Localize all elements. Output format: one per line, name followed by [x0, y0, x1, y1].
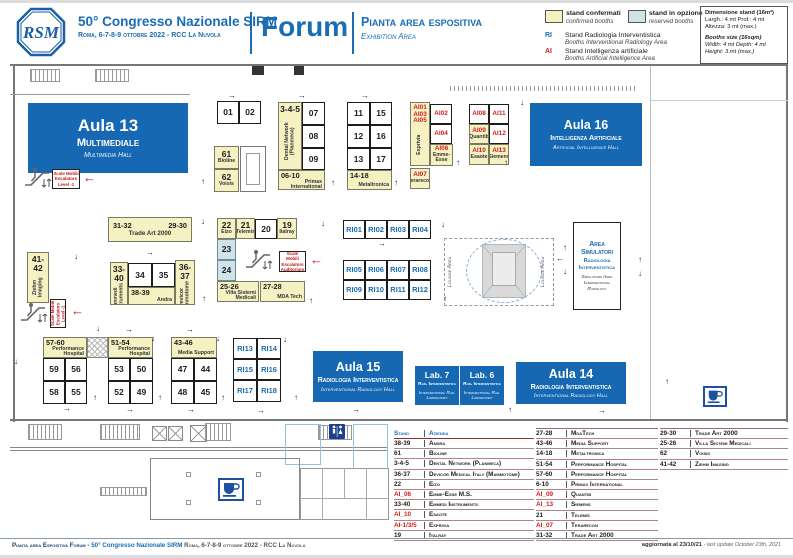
directory-company-name: Performance Hospital: [566, 471, 627, 478]
confirmed-booth-label: stand confermati: [566, 10, 621, 18]
booth-code: RI17: [237, 387, 253, 395]
escalator-center-sign: Scale Mobili Escalators Auditorium: [279, 251, 306, 272]
direction-arrow: ↑: [394, 179, 398, 187]
escalator-west-arrow: ←: [83, 171, 96, 184]
booth-61: 61Bioline: [214, 146, 239, 169]
booth-code: RI06: [368, 266, 384, 274]
directory-row: 62Voisis: [660, 449, 788, 459]
direction-arrow: ↑: [158, 394, 162, 402]
directory-stand-code: 27-28: [536, 430, 566, 437]
confirmed-booth-sublabel: confirmed booths: [566, 18, 613, 25]
booth-RI05: RI05: [343, 260, 365, 280]
hall-lab-6-t3: Interventional Rad. Laboratory: [460, 390, 504, 401]
direction-arrow: ↓: [96, 325, 100, 333]
hall-lab-7-t1: Lab. 7: [425, 371, 450, 381]
booth-code: 44: [201, 365, 210, 374]
booth-code: RI05: [346, 266, 362, 274]
booth-code: AI08: [472, 111, 486, 118]
booth-code: RI01: [346, 226, 362, 234]
directory-stand-code: 36-37: [394, 471, 424, 478]
simulators-area-box: Area Simulatori Radiologia Interventisti…: [573, 222, 621, 310]
booth-55: 55: [65, 381, 87, 404]
directory-row: 3-4-5Dental Network (Planmeca): [394, 459, 534, 469]
direction-arrow: ↓: [563, 268, 567, 276]
booth-31-32-29-30: 31-3229-30Trade Art 2000: [108, 217, 192, 242]
direction-arrow: ↓: [638, 270, 642, 278]
directory-row: 19Italray: [394, 531, 534, 541]
booth-51-54: 51-54Performance Hospital: [108, 337, 153, 358]
simulators-title-it: Area Simulatori: [581, 240, 613, 257]
directory-company-name: Esaote: [424, 511, 447, 518]
booth-44: 44: [194, 358, 217, 381]
directory-stand-code: AI_06: [394, 491, 424, 498]
escalator-center-arrow: ←: [310, 253, 323, 266]
directory-row: AI_06Emme-Esse M.S.: [394, 490, 534, 500]
direction-arrow: ↑: [93, 394, 97, 402]
booth-35: 35: [152, 263, 175, 287]
directory-row: 6-10Primax International: [536, 480, 658, 490]
booth-code: RI16: [261, 366, 277, 374]
booth-company: Italray: [279, 230, 294, 235]
direction-arrow: ↑: [638, 256, 642, 264]
ai-legend-sublabel: Booths Artificial Intelligence Area: [565, 55, 655, 62]
direction-arrow: ↓: [283, 336, 287, 344]
hall-lab-6-t2: Rad. Interventistica: [463, 382, 501, 388]
direction-arrow: →: [186, 326, 194, 334]
directory-company-name: Voisis: [690, 450, 710, 457]
directory-stand-code: 6-10: [536, 481, 566, 488]
booth-41-42: 41-42Ziehm Imaging: [27, 252, 49, 303]
booth-code: 31-32: [113, 222, 132, 230]
direction-arrow: →: [378, 240, 386, 248]
booth-company: Emme-Esse: [431, 153, 452, 164]
booth-62: 62Voisis: [214, 169, 239, 192]
booth-23: 23: [217, 239, 236, 260]
booth-code: RI02: [368, 226, 384, 234]
directory-row: 14-18Metaltronica: [536, 449, 658, 459]
booth-RI03: RI03: [387, 220, 409, 239]
directory-stand-code: 14-18: [536, 450, 566, 457]
directory-stand-code: 21: [536, 512, 566, 519]
direction-arrow: →: [257, 407, 265, 415]
booth-code: 12: [354, 132, 363, 141]
directory-company-name: Primax International: [566, 481, 623, 488]
booth-AI12: AI12: [489, 124, 509, 144]
direction-arrow: ↓: [441, 221, 445, 229]
directory-stand-code: 25-26: [660, 440, 690, 447]
booth-code: RI12: [412, 286, 428, 294]
booth-13: 13: [347, 148, 370, 170]
booth-RI07: RI07: [387, 260, 409, 280]
booth-code: 27-28: [263, 283, 302, 291]
booth-RI12: RI12: [409, 280, 431, 300]
header-divider: [250, 12, 252, 54]
booth-27-28: 27-28MDA Tech: [260, 281, 305, 302]
booth-code: 52: [114, 388, 123, 397]
directory-company-name: Dental Network (Planmeca): [424, 460, 501, 467]
booth-code: 49: [137, 388, 146, 397]
direction-arrow: ↑: [201, 178, 205, 186]
booth-code: 07: [309, 109, 318, 118]
booth-company: Trade Art 2000: [129, 231, 171, 238]
venue-name: Forum: [261, 11, 348, 43]
direction-arrow: ↓: [201, 218, 205, 226]
booth-RI01: RI01: [343, 220, 365, 239]
stand-dimensions-box: Dimensione stand (16m²) Largh.: 4 mt Pro…: [700, 6, 788, 64]
hall-aula-16-t2: Intelligenza Artificiale: [550, 134, 621, 142]
hall-aula-15-t3: Interventional Radiology Hall: [321, 387, 395, 393]
direction-arrow: ↑: [563, 244, 567, 252]
directory-row: AI-1/3/5Exprivia: [394, 521, 534, 531]
booth-57-60: 57-60Performance Hospital: [43, 337, 87, 358]
directory-company-name: MdaTech: [566, 430, 594, 437]
booth-RI09: RI09: [343, 280, 365, 300]
service-area-hatch: [87, 337, 108, 358]
booth-code: 15: [376, 109, 385, 118]
hall-aula-15-t2: Radiologia Interventistica: [318, 376, 399, 384]
direction-arrow: →: [187, 406, 195, 414]
hall-aula-14-t3: Interventional Radiology Hall: [534, 393, 608, 399]
booth-code: AI01 AI03 AI05: [413, 105, 427, 125]
booth-code: 55: [71, 388, 80, 397]
directory-row: 25-26Villa Sistemi Medicali: [660, 439, 788, 449]
directory-company-name: Andra: [424, 440, 445, 447]
booth-code: RI09: [346, 286, 362, 294]
booth-code: RI15: [237, 366, 253, 374]
directory-company-name: Quantib: [566, 491, 591, 498]
booth-company: Metaltronica: [350, 183, 389, 188]
booth-20: 20: [255, 219, 277, 239]
hall-lab-7-t3: Interventional Rad. Laboratory: [415, 390, 459, 401]
directory-company-name: Media Support: [566, 440, 609, 447]
booth-RI11: RI11: [387, 280, 409, 300]
booth-code: 3-4-5: [280, 105, 300, 114]
booth-RI14: RI14: [257, 338, 281, 359]
directory-company-name: Bioline: [424, 450, 447, 457]
simulators-subtitle-it: Radiologia Interventistica: [579, 258, 615, 271]
booth-17: 17: [370, 148, 392, 170]
booth-RI02: RI02: [365, 220, 387, 239]
booth-company: Telemis: [236, 230, 255, 235]
booth-21: 21Telemis: [236, 218, 255, 239]
booth-code: 38-39: [131, 289, 172, 297]
directory-row: 33-40Emmedi Instruments: [394, 500, 534, 510]
booth-code: 29-30: [168, 222, 187, 230]
booth-code: 01: [223, 108, 232, 117]
booth-12: 12: [347, 125, 370, 148]
direction-arrow: →: [352, 406, 360, 414]
booth-48: 48: [171, 381, 194, 404]
booth-code: 41-42: [28, 255, 48, 273]
hall-aula-16-t1: Aula 16: [564, 118, 608, 132]
booth-code: RI13: [237, 345, 253, 353]
direction-arrow: ↓: [216, 335, 220, 343]
directory-stand-code: 3-4-5: [394, 460, 424, 467]
booth-code: 17: [376, 155, 385, 164]
booth-code: RI07: [390, 266, 406, 274]
booth-code: RI18: [261, 387, 277, 395]
booth-code: 53: [114, 365, 123, 374]
booth-59: 59: [43, 358, 65, 381]
booth-AI09: AI09Quantib: [469, 124, 489, 144]
restroom-icon: [329, 424, 345, 439]
dimensions-title-it: Dimensione stand (16m²): [705, 10, 783, 17]
booth-25-26: 25-26Villa Sistemi Medicali: [217, 281, 259, 302]
booth-code: 36-37: [176, 263, 194, 281]
dimensions-title-en: Booths size (16sqm): [705, 35, 783, 42]
direction-arrow: ↓: [151, 335, 155, 343]
directory-stand-code: 51-54: [536, 461, 566, 468]
directory-row: AI_13Siemens: [536, 500, 658, 510]
booth-company: Voisis: [219, 182, 234, 187]
booth-AI04: AI04: [430, 124, 452, 144]
reserved-booth-sublabel: reserved booths: [649, 18, 693, 25]
directory-row: 27-28MdaTech: [536, 429, 658, 439]
booth-company: Devicor Mammotome: [180, 281, 191, 305]
direction-arrow: ↑: [456, 159, 460, 167]
booth-AI06: AI06Emme-Esse: [430, 144, 453, 166]
booth-code: AI12: [492, 131, 506, 138]
directory-stand-code: AI-1/3/5: [394, 522, 424, 529]
booth-02: 02: [239, 101, 261, 124]
direction-arrow: ↑: [202, 295, 206, 303]
booth-11: 11: [347, 102, 370, 125]
booth-code: AI11: [492, 111, 505, 118]
directory-row: 57-60Performance Hospital: [536, 470, 658, 480]
directory-company-name: Villa Sistemi Medicali: [690, 440, 751, 447]
booth-code: 16: [376, 132, 385, 141]
booth-code: 02: [245, 108, 254, 117]
booth-AI10: AI10Esaote: [469, 144, 489, 165]
direction-arrow: ↓: [520, 99, 524, 107]
booth-19: 19Italray: [277, 218, 297, 239]
booth-company: Primax International: [281, 180, 322, 190]
directory-stand-code: 29-30: [660, 430, 690, 437]
booth-code: RI10: [368, 286, 384, 294]
elevator-icon: [152, 426, 167, 441]
direction-arrow: →: [361, 92, 369, 100]
directory-company-name: Emmedi Instruments: [424, 501, 478, 508]
escalator-southwest-sign: Scale Mobili Escalators Level -1: [50, 299, 66, 328]
directory-stand-code: AI_09: [536, 491, 566, 498]
directory-row: 51-54Performance Hospital: [536, 460, 658, 470]
congress-title: 50° Congresso Nazionale SIRM: [78, 14, 277, 29]
directory-company-name: Performance Hospital: [566, 461, 627, 468]
booth-AI11: AI11: [489, 104, 509, 124]
header-divider: [352, 12, 354, 54]
booth-53: 53: [108, 358, 130, 381]
hall-aula-14-t1: Aula 14: [549, 367, 593, 381]
hall-lab-6: Lab. 6Rad. InterventisticaInterventional…: [460, 366, 504, 405]
booth-code: 11: [354, 109, 363, 118]
booth-code: 08: [309, 132, 318, 141]
directory-row: 31-32Trade Art 2000: [536, 531, 658, 541]
booth-07: 07: [302, 102, 325, 125]
directory-company-name: Ziehm Imaging: [690, 461, 729, 468]
booth-36-37: 36-37Devicor Mammotome: [175, 260, 195, 305]
directory-row: 36-37Devicor Medical Italy (Mammotome): [394, 470, 534, 480]
booth-company: Esaote: [470, 155, 487, 160]
confirmed-booth-swatch: [545, 10, 563, 23]
directory-row: AI_10Esaote: [394, 510, 534, 520]
directory-stand-header: Stand: [394, 430, 424, 437]
exhibitor-directory-column-3: 29-30Trade Art 200025-26Villa Sistemi Me…: [660, 428, 788, 470]
booth-company: Andra: [131, 298, 172, 303]
directory-company-name: Telemis: [566, 512, 590, 519]
sirm-logo: RSM: [16, 7, 66, 57]
direction-arrow: →: [598, 407, 606, 415]
directory-row: 21Telemis: [536, 511, 658, 521]
directory-stand-code: 61: [394, 450, 424, 457]
escalator-west-sign: Scale Mobili Escalators Level -1: [52, 169, 80, 189]
booth-33-40: 33-40Emmedi Instruments: [110, 262, 128, 305]
booth-company: Emmedi Instruments: [114, 283, 125, 305]
directory-company-name: Terarecon: [566, 522, 598, 529]
booth-code: 34: [135, 271, 144, 280]
directory-stand-code: 33-40: [394, 501, 424, 508]
directory-stand-code: AI_10: [394, 511, 424, 518]
footer-updated-en: - last update October 23th, 2021: [704, 542, 781, 548]
exhibitor-directory-column-1: StandAzienda38-39Andra61Bioline3-4-5Dent…: [394, 428, 534, 541]
hall-aula-15: Aula 15Radiologia InterventisticaInterve…: [313, 351, 403, 402]
booth-company: Performance Hospital: [46, 347, 84, 358]
directory-company-name: Siemens: [566, 501, 591, 508]
hall-aula-13-t2: Multimediale: [77, 137, 139, 150]
sirm-monogram: RSM: [22, 23, 60, 42]
hall-aula-15-t1: Aula 15: [336, 360, 380, 374]
booth-52: 52: [108, 381, 130, 404]
direction-arrow: ↑: [221, 394, 225, 402]
footer-updated-it: aggiornata al 23/10/21: [642, 542, 702, 548]
footer-right-text: aggiornata al 23/10/21 - last update Oct…: [0, 542, 781, 548]
hall-lab-7: Lab. 7Rad. InterventisticaInterventional…: [415, 366, 459, 405]
booth-company: Villa Sistemi Medicali: [220, 291, 256, 302]
booth-RI08: RI08: [409, 260, 431, 280]
booth-24: 24: [217, 260, 236, 281]
booth-RI15: RI15: [233, 359, 257, 380]
direction-arrow: →: [125, 326, 133, 334]
footer-rule: [0, 538, 793, 539]
dimensions-line1-it: Largh.: 4 mt Prof.: 4 mt: [705, 17, 783, 24]
ri-legend-code: RI: [545, 32, 552, 39]
booth-code: 43-46: [174, 339, 214, 347]
booth-code: RI14: [261, 345, 277, 353]
booth-47: 47: [171, 358, 194, 381]
hall-aula-14-t2: Radiologia Interventistica: [531, 383, 612, 391]
directory-company-name: Exprivia: [424, 522, 449, 529]
directory-row: 61Bioline: [394, 449, 534, 459]
booth-code: 20: [261, 225, 270, 234]
booth-RI10: RI10: [365, 280, 387, 300]
directory-stand-code: AI_07: [536, 522, 566, 529]
booth-22: 22Eizo: [217, 218, 236, 239]
direction-arrow: →: [146, 249, 154, 257]
booth-RI06: RI06: [365, 260, 387, 280]
booth-code: AI02: [434, 111, 448, 118]
booth-company: Ziehm Imaging: [33, 273, 44, 302]
lounge-label-left: Lounge Area: [447, 242, 453, 302]
directory-stand-code: 57-60: [536, 471, 566, 478]
directory-company-name: Emme-Esse M.S.: [424, 491, 472, 498]
booth-code: 58: [49, 388, 58, 397]
booth-06-10: 06-10Primax International: [278, 170, 325, 190]
ri-legend-sublabel: Booths Interventional Radiology Area: [565, 39, 667, 46]
plan-title: Pianta area espositiva: [361, 15, 482, 29]
directory-company-name: Metaltronica: [566, 450, 604, 457]
direction-arrow: ↑: [294, 394, 298, 402]
direction-arrow: ↓: [14, 358, 18, 366]
booth-RI17: RI17: [233, 380, 257, 402]
congress-subtitle: Roma, 6-7-8-9 ottobre 2022 - RCC La Nuvo…: [78, 32, 221, 39]
direction-arrow: ↓: [321, 220, 325, 228]
direction-arrow: →: [298, 92, 306, 100]
booth-RI13: RI13: [233, 338, 257, 359]
hall-aula-16-t3: Artificial Intelligence Hall: [553, 145, 619, 151]
booth-58: 58: [43, 381, 65, 404]
directory-company-name: Trade Art 2000: [690, 430, 738, 437]
direction-arrow: ↑: [331, 179, 335, 187]
booth-code: 13: [354, 155, 363, 164]
directory-stand-code: 43-46: [536, 440, 566, 447]
booth-code: 47: [178, 365, 187, 374]
booth-code: 33-40: [111, 265, 127, 283]
booth-08: 08: [302, 125, 325, 148]
direction-arrow: ↑: [443, 295, 447, 303]
escalator-center-icon: [243, 247, 273, 271]
booth-company: Performance Hospital: [111, 347, 150, 358]
booth-AI01-03-05: AI01 AI03 AI05Exprivia: [410, 102, 430, 166]
escalator-southwest-icon: [18, 300, 48, 324]
hall-aula-13-t1: Aula 13: [78, 116, 138, 136]
booth-49: 49: [130, 381, 153, 404]
directory-header-row: StandAzienda: [394, 428, 534, 439]
booth-company: Exprivia: [417, 125, 422, 165]
directory-company-name: Devicor Medical Italy (Mammotome): [424, 471, 520, 478]
escalator-west-icon: [22, 165, 52, 189]
hall-aula-14: Aula 14Radiologia InterventisticaInterve…: [516, 362, 626, 404]
booth-code: RI11: [390, 286, 405, 294]
booth-code: 48: [178, 388, 187, 397]
reserved-booth-swatch: [628, 10, 646, 23]
simulators-title-en: Simulators Area Interventional Radiology: [582, 275, 613, 292]
booth-56: 56: [65, 358, 87, 381]
exhibitor-directory-column-2: 27-28MdaTech43-46Media Support14-18Metal…: [536, 428, 658, 541]
direction-arrow: →: [63, 405, 71, 413]
direction-arrow: ←: [556, 255, 564, 263]
hall-aula-13-t3: Multimedia Hall: [84, 152, 132, 160]
escalator-southwest-arrow: ←: [71, 304, 84, 317]
directory-row: 22Eizo: [394, 480, 534, 490]
booth-code: 50: [137, 365, 146, 374]
cafe-icon: [703, 386, 727, 407]
direction-arrow: ↑: [508, 406, 512, 414]
booth-3-4-5: 3-4-5Dental Network (Planmeca): [278, 102, 302, 170]
booth-code: 35: [159, 271, 168, 280]
booth-AI08: AI08: [469, 104, 489, 124]
booth-code: 56: [71, 365, 80, 374]
direction-arrow: ↑: [665, 378, 669, 386]
booth-company: Terarecon: [410, 179, 430, 184]
booth-code: 45: [201, 388, 210, 397]
hall-lab-7-t2: Rad. Interventistica: [418, 382, 456, 388]
booth-code: AI04: [434, 131, 448, 138]
booth-code: 23: [222, 245, 231, 254]
booth-45: 45: [194, 381, 217, 404]
booth-code: RI03: [390, 226, 406, 234]
direction-arrow: ↑: [309, 297, 313, 305]
booth-company: Bioline: [218, 159, 235, 164]
plan-subtitle: Exhibition Area: [361, 32, 416, 41]
